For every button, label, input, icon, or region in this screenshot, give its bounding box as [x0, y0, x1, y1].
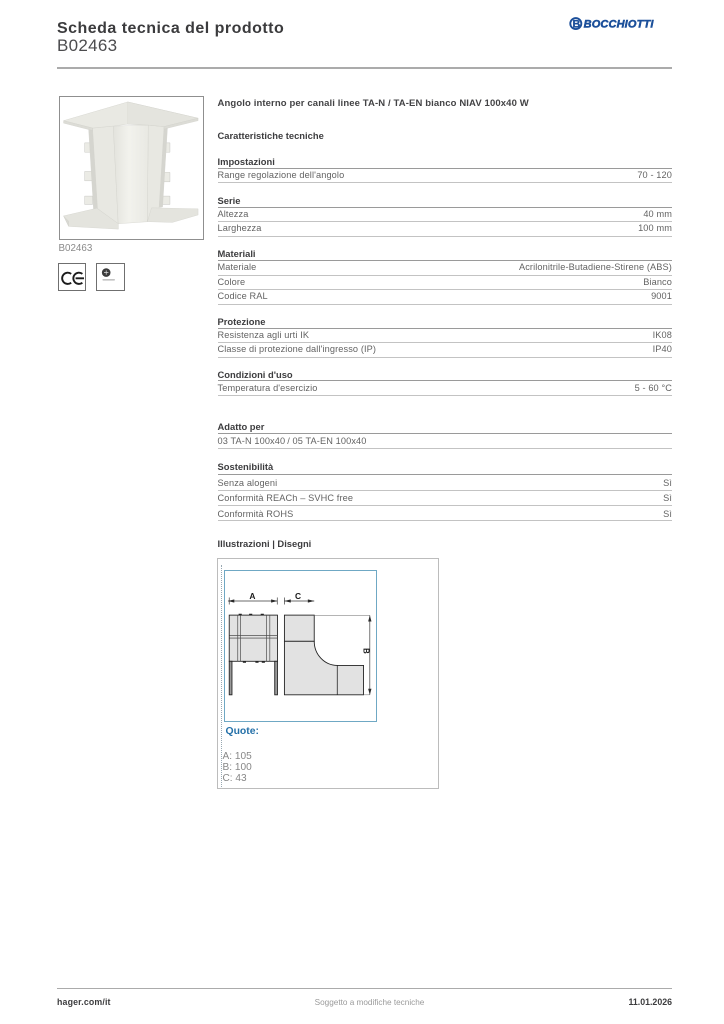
svg-text:A: A	[249, 591, 255, 601]
svg-text:C: C	[295, 591, 301, 601]
svg-text:BOCCHIOTTI: BOCCHIOTTI	[584, 19, 655, 31]
svg-text:B: B	[361, 648, 370, 654]
svg-text:B: B	[573, 18, 581, 30]
